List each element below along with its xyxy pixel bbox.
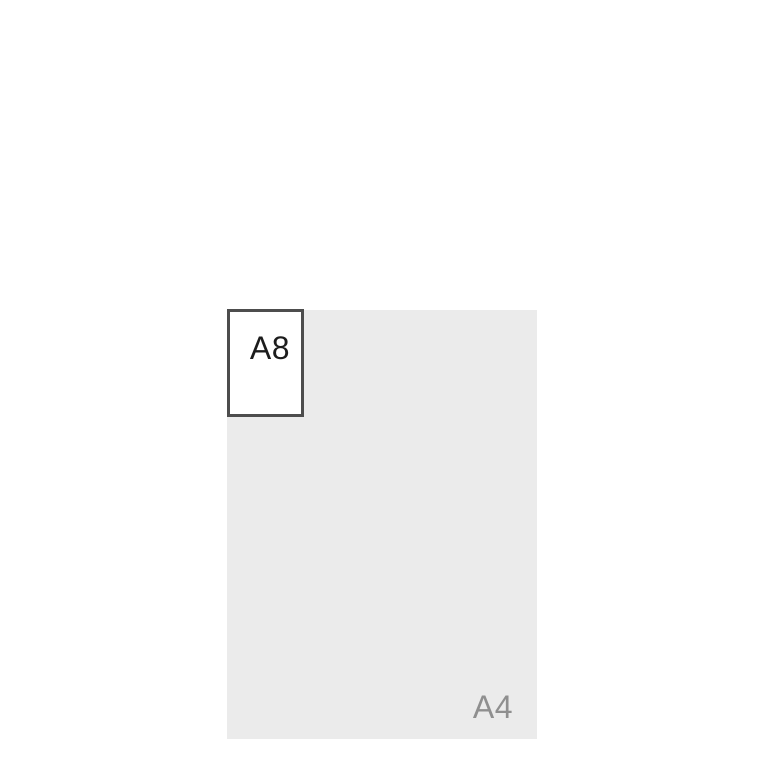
a4-label: A4 xyxy=(473,691,513,723)
a8-label: A8 xyxy=(250,332,290,364)
diagram-canvas: A4 A8 xyxy=(0,0,765,765)
a8-sheet: A8 xyxy=(227,309,304,417)
